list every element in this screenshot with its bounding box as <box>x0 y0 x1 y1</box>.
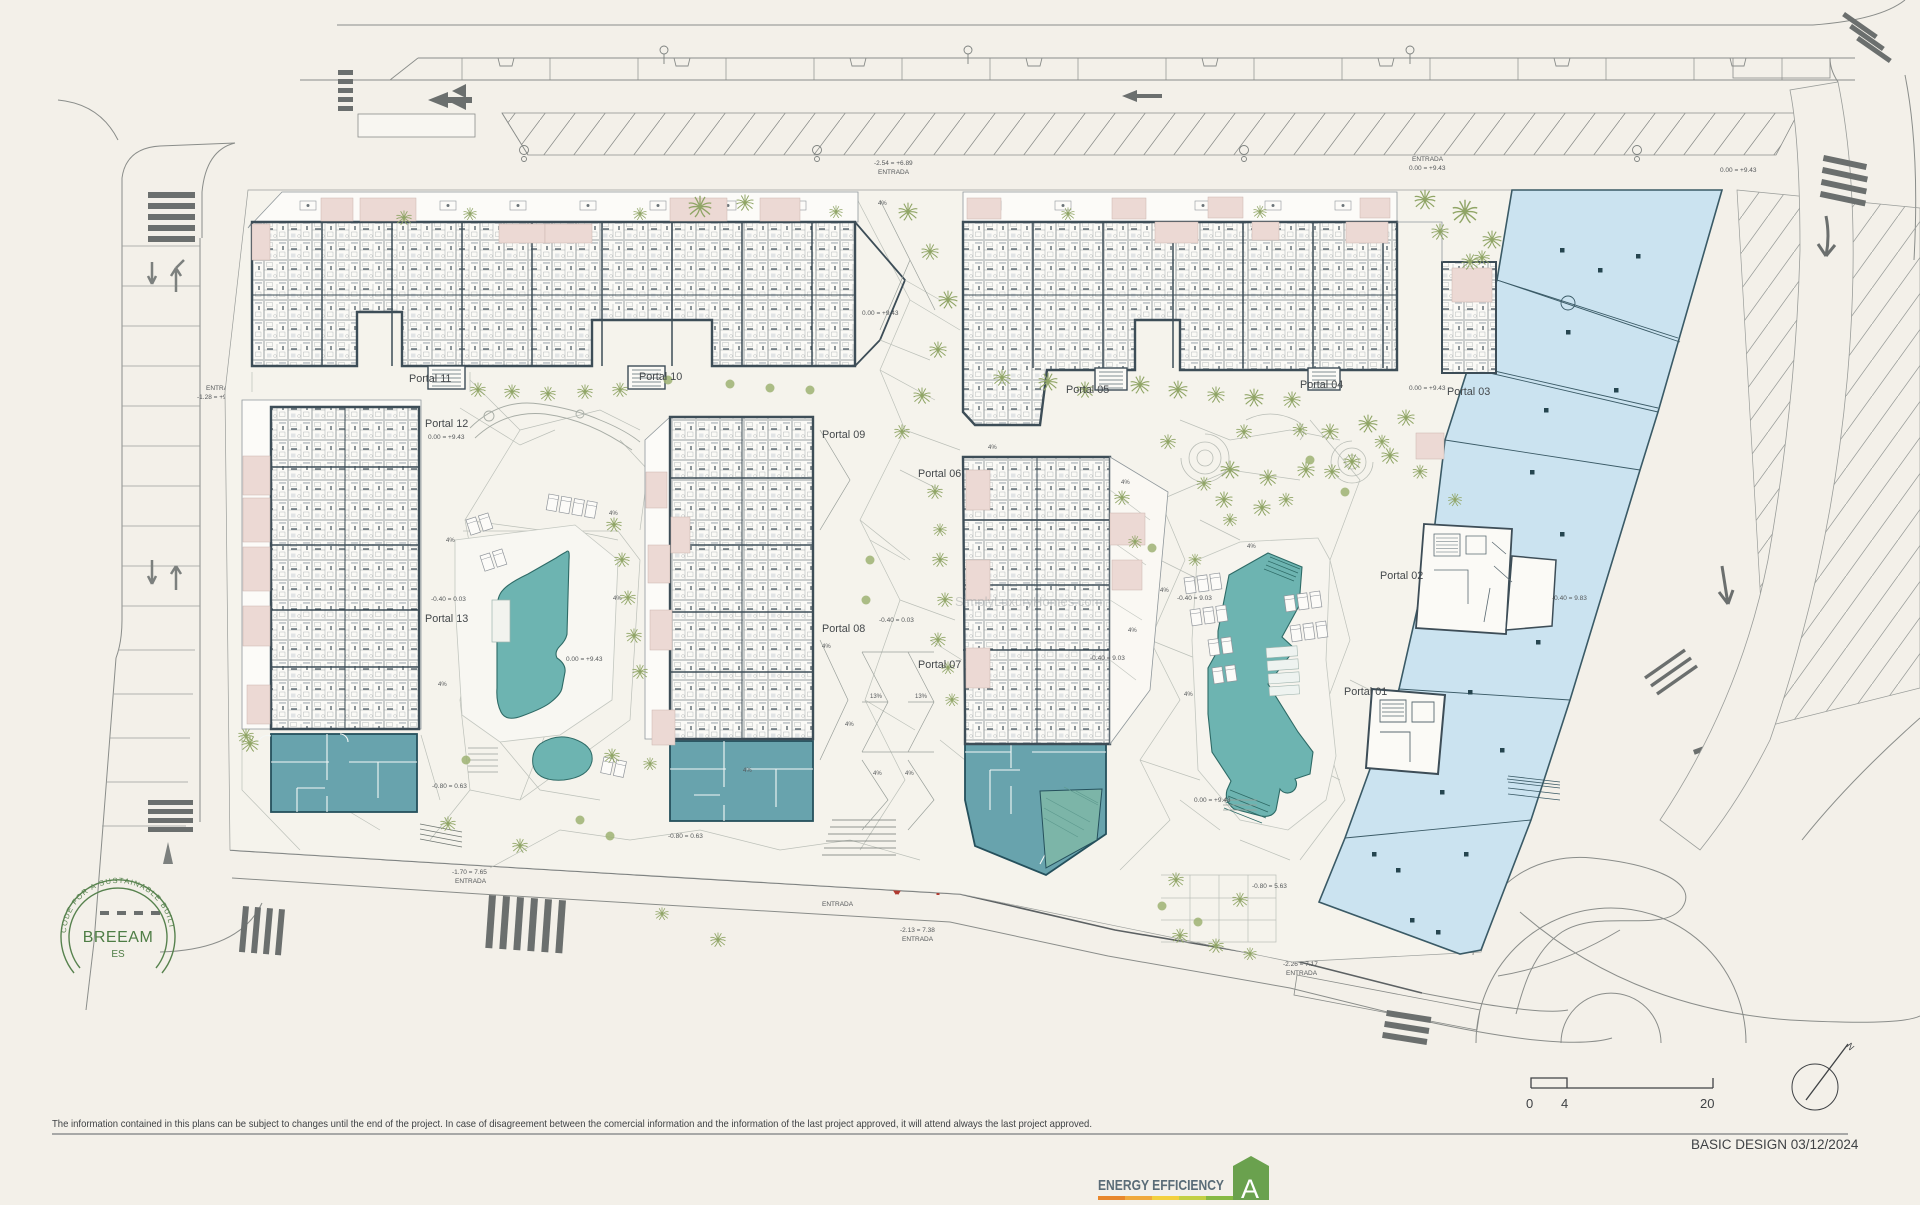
svg-text:0.00 = +9.43: 0.00 = +9.43 <box>1720 167 1757 174</box>
svg-text:ENTRADA: ENTRADA <box>455 878 487 885</box>
svg-text:4%: 4% <box>446 538 455 544</box>
svg-text:-0.40 = 9.83: -0.40 = 9.83 <box>1552 595 1587 602</box>
svg-text:BASIC DESIGN 03/12/2024: BASIC DESIGN 03/12/2024 <box>1691 1137 1859 1152</box>
svg-text:Portal 06: Portal 06 <box>918 468 961 480</box>
svg-text:ENTRADA: ENTRADA <box>1412 156 1444 163</box>
svg-text:ES: ES <box>111 949 125 960</box>
svg-text:4%: 4% <box>878 201 887 207</box>
svg-text:4%: 4% <box>1128 628 1137 634</box>
svg-text:4%: 4% <box>873 771 882 777</box>
svg-text:The information contained in t: The information contained in this plans … <box>52 1118 1092 1130</box>
svg-text:Portal 09: Portal 09 <box>822 429 865 441</box>
svg-text:-2.26 = 7.17: -2.26 = 7.17 <box>1283 961 1318 968</box>
svg-text:4%: 4% <box>609 511 618 517</box>
svg-text:-0.80 = 5.63: -0.80 = 5.63 <box>1252 883 1287 890</box>
svg-text:0.00 = +9.43: 0.00 = +9.43 <box>1409 385 1446 392</box>
svg-text:4%: 4% <box>822 644 831 650</box>
svg-text:ENTRADA: ENTRADA <box>902 936 934 943</box>
svg-text:Portal 13: Portal 13 <box>425 613 468 625</box>
svg-text:-0.40 = 9.03: -0.40 = 9.03 <box>1090 655 1125 662</box>
svg-text:4%: 4% <box>743 768 752 774</box>
svg-text:-0.40 = 0.03: -0.40 = 0.03 <box>879 617 914 624</box>
svg-text:BREEAM: BREEAM <box>83 929 154 946</box>
svg-text:4%: 4% <box>438 682 447 688</box>
svg-text:Portal 12: Portal 12 <box>425 418 468 430</box>
svg-text:Portal 05: Portal 05 <box>1066 384 1109 396</box>
svg-text:20: 20 <box>1700 1096 1714 1111</box>
svg-text:-2.54 = +6.89: -2.54 = +6.89 <box>874 160 913 167</box>
svg-text:Portal 08: Portal 08 <box>822 623 865 635</box>
svg-text:4: 4 <box>1561 1096 1568 1111</box>
svg-text:13%: 13% <box>870 694 883 700</box>
svg-text:0.00 = +9.43: 0.00 = +9.43 <box>1409 165 1446 172</box>
svg-text:Portal 10: Portal 10 <box>639 371 682 383</box>
svg-text:4%: 4% <box>1247 544 1256 550</box>
svg-text:0.00 = +9.43: 0.00 = +9.43 <box>1194 797 1231 804</box>
svg-text:0.00 = +9.43: 0.00 = +9.43 <box>428 434 465 441</box>
svg-text:ENTRADA: ENTRADA <box>822 901 854 908</box>
svg-text:-0.40 = 0.03: -0.40 = 0.03 <box>431 596 466 603</box>
svg-text:Portal 02: Portal 02 <box>1380 570 1423 582</box>
svg-text:Portal 01: Portal 01 <box>1344 686 1387 698</box>
svg-text:-0.40 = 9.03: -0.40 = 9.03 <box>1177 595 1212 602</box>
svg-text:Portal 11: Portal 11 <box>409 373 451 385</box>
svg-text:-2.13 = 7.38: -2.13 = 7.38 <box>900 927 935 934</box>
svg-text:-0.80 = 0.63: -0.80 = 0.63 <box>668 833 703 840</box>
svg-text:4%: 4% <box>1184 692 1193 698</box>
svg-text:4%: 4% <box>845 722 854 728</box>
svg-text:ENTRADA: ENTRADA <box>1286 970 1318 977</box>
svg-text:ENTRADA: ENTRADA <box>878 169 910 176</box>
svg-text:4%: 4% <box>1160 588 1169 594</box>
svg-text:4%: 4% <box>988 445 997 451</box>
svg-text:Portal 07: Portal 07 <box>918 659 961 671</box>
svg-text:A: A <box>1241 1174 1259 1200</box>
svg-text:SimplyLuxuryHomes.com: SimplyLuxuryHomes.com <box>955 594 1102 609</box>
svg-text:-0.80 = 0.63: -0.80 = 0.63 <box>432 783 467 790</box>
svg-text:0: 0 <box>1526 1096 1533 1111</box>
svg-text:-1.70 = 7.65: -1.70 = 7.65 <box>452 869 487 876</box>
svg-text:0.00 = +9.43: 0.00 = +9.43 <box>862 310 899 317</box>
svg-text:4%: 4% <box>905 771 914 777</box>
svg-text:4%: 4% <box>1121 480 1130 486</box>
svg-text:Portal 04: Portal 04 <box>1300 379 1343 391</box>
svg-text:0.00 = +9.43: 0.00 = +9.43 <box>566 656 603 663</box>
svg-text:Portal 03: Portal 03 <box>1447 386 1490 398</box>
svg-text:13%: 13% <box>915 694 928 700</box>
svg-text:ENERGY EFFICIENCY: ENERGY EFFICIENCY <box>1098 1177 1224 1194</box>
